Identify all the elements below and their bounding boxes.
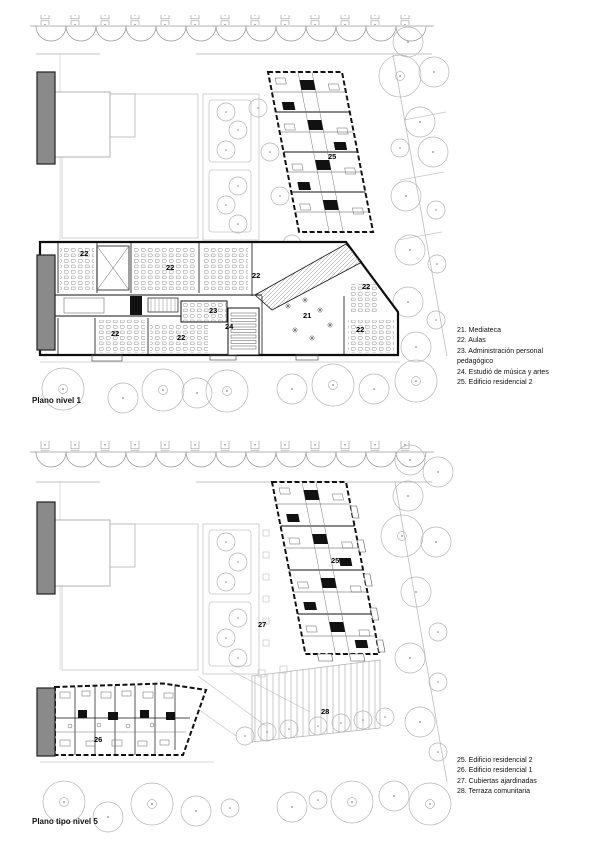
street-tree-row: [30, 15, 434, 41]
service-bar-top: [37, 502, 110, 594]
residential-building-25: [268, 72, 373, 232]
street-tree-row: [30, 441, 434, 467]
community-terrace: [236, 660, 394, 745]
planter-strip: [203, 94, 259, 240]
school-building: [37, 242, 400, 362]
site-plan-level5-drawing: [0, 430, 600, 848]
architectural-sheet: Plano nivel 1 Plano tipo nivel 5 21. Med…: [0, 0, 600, 848]
east-garden: [381, 445, 453, 782]
site-plan-level1-drawing: [0, 0, 600, 430]
south-tree-row: [43, 781, 451, 832]
residential-building-26: [37, 684, 214, 763]
south-tree-row: [42, 360, 437, 413]
residential-building-25: [272, 482, 387, 661]
service-bar-top: [37, 72, 110, 164]
